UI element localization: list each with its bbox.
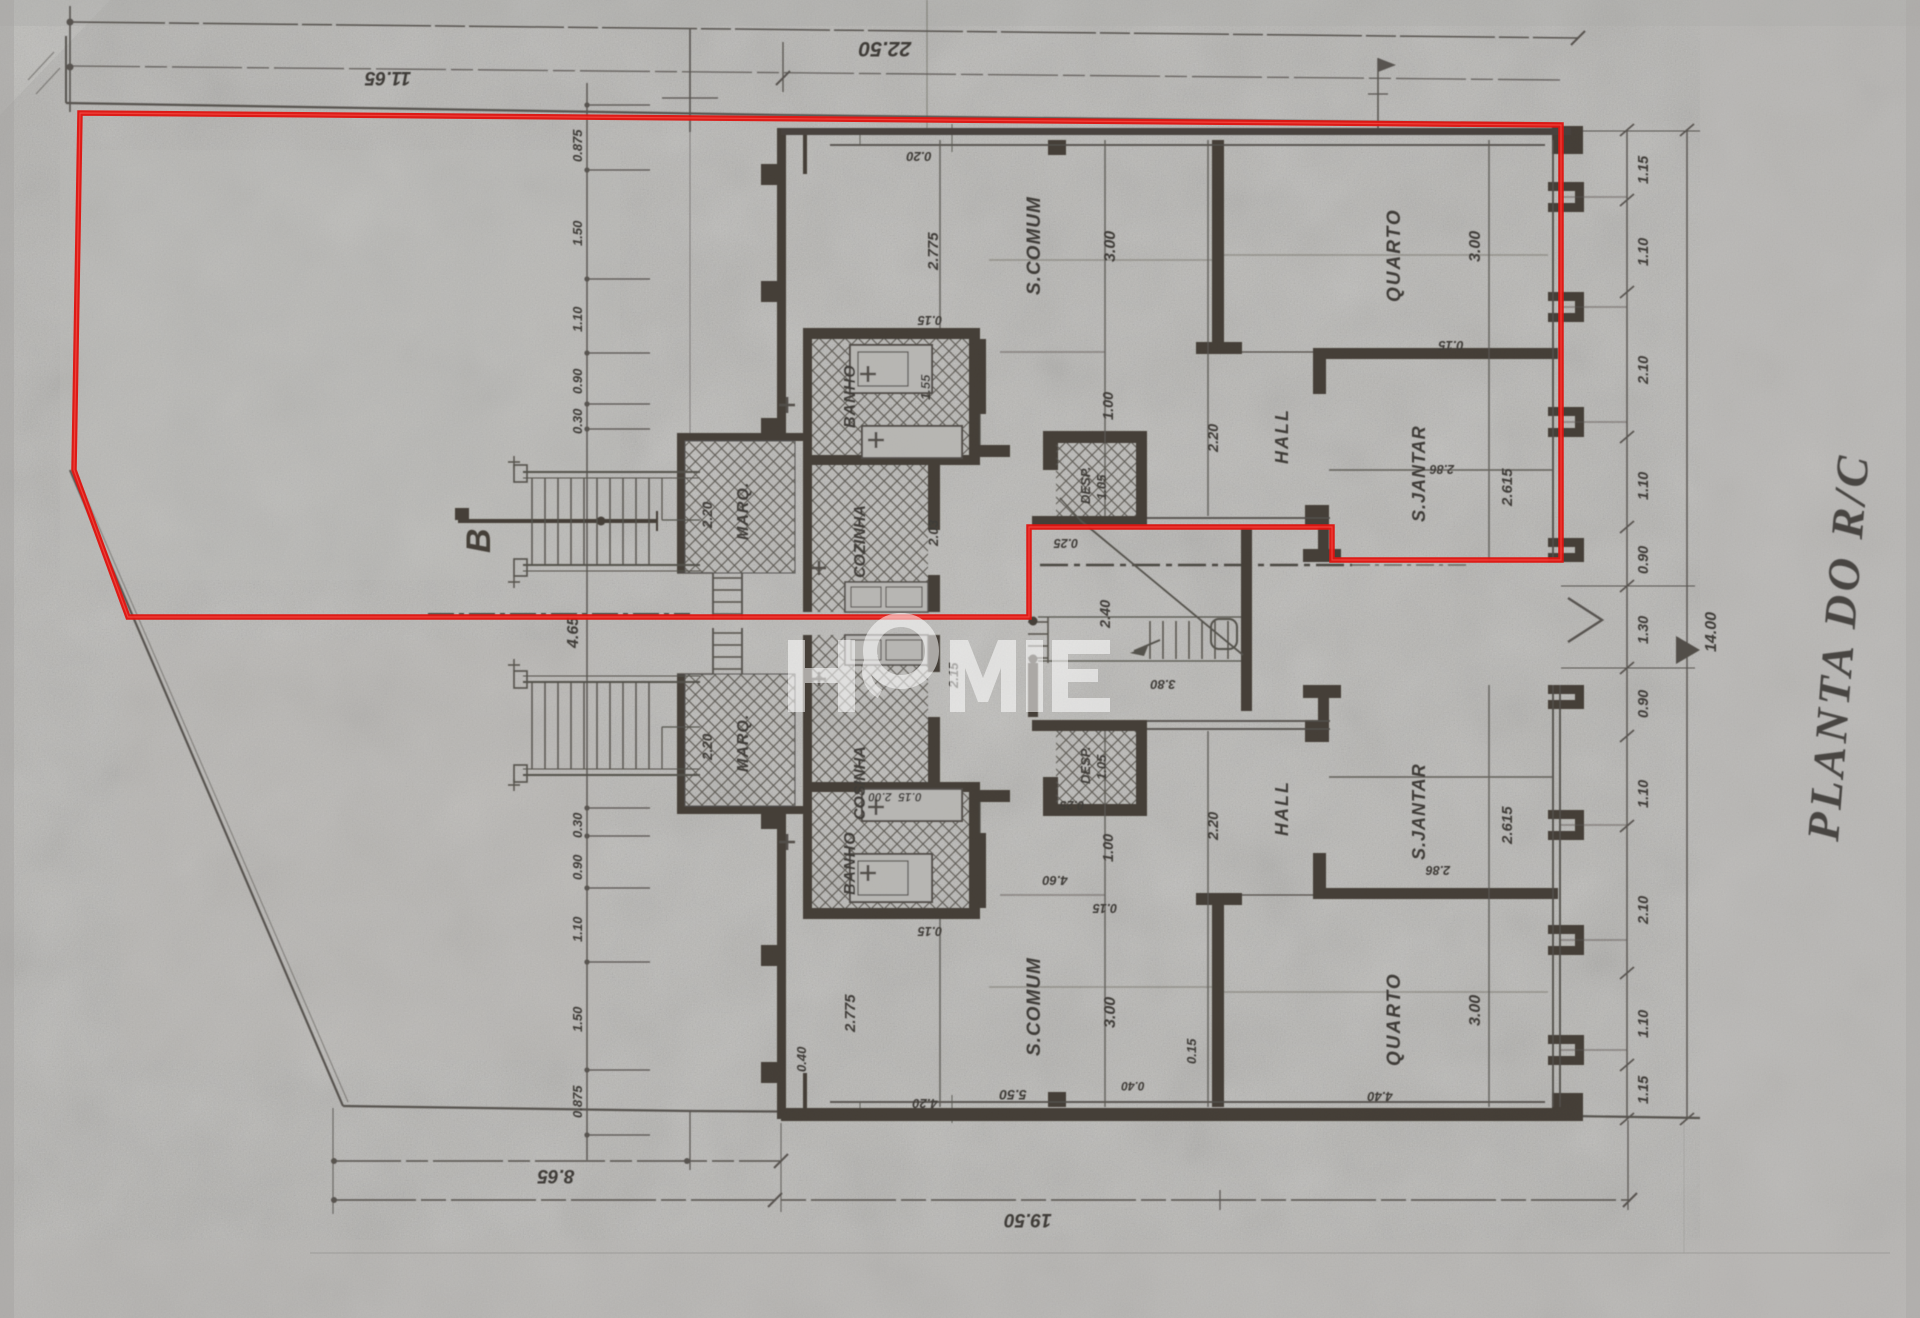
svg-text:HALL: HALL (1272, 780, 1292, 836)
svg-text:1.00: 1.00 (1101, 392, 1117, 420)
svg-text:4.20: 4.20 (912, 1096, 939, 1111)
svg-text:2.615: 2.615 (1499, 806, 1516, 845)
svg-text:22.50: 22.50 (858, 37, 912, 60)
svg-text:4.40: 4.40 (1367, 1089, 1394, 1104)
svg-text:COZINHA: COZINHA (852, 505, 869, 578)
svg-text:3.00: 3.00 (1467, 995, 1484, 1026)
svg-text:2.20: 2.20 (700, 501, 715, 529)
svg-text:0.40: 0.40 (1121, 1079, 1145, 1093)
svg-text:0.15: 0.15 (1184, 1038, 1199, 1064)
svg-text:0.25: 0.25 (1059, 798, 1084, 812)
svg-text:1.50: 1.50 (570, 1006, 585, 1032)
svg-text:0.30: 0.30 (570, 812, 585, 838)
svg-text:0.90: 0.90 (570, 854, 585, 880)
svg-text:1.10: 1.10 (570, 306, 585, 332)
svg-text:0.25: 0.25 (1053, 536, 1078, 550)
svg-text:MARQ.: MARQ. (735, 482, 752, 540)
svg-text:2.775: 2.775 (842, 994, 859, 1033)
svg-text:2.10: 2.10 (1636, 896, 1652, 925)
svg-text:1.30: 1.30 (1636, 616, 1652, 644)
svg-text:BANHO: BANHO (842, 831, 859, 895)
svg-text:QUARTO: QUARTO (1384, 972, 1405, 1066)
svg-text:3.00: 3.00 (1102, 997, 1119, 1028)
svg-text:0.875: 0.875 (570, 129, 585, 162)
svg-text:HALL: HALL (1272, 408, 1292, 464)
svg-text:0.90: 0.90 (1636, 690, 1652, 718)
svg-text:MARQ.: MARQ. (735, 714, 752, 772)
svg-text:11.65: 11.65 (365, 67, 412, 88)
svg-text:1.15: 1.15 (1636, 1075, 1652, 1104)
svg-text:0.15 2.00: 0.15 2.00 (868, 790, 922, 804)
svg-text:3.80: 3.80 (1150, 677, 1176, 692)
svg-text:0.20: 0.20 (906, 149, 932, 164)
svg-text:0.30: 0.30 (570, 408, 585, 434)
svg-text:2.86: 2.86 (1425, 863, 1451, 877)
svg-text:0.15: 0.15 (1092, 901, 1117, 915)
svg-text:4.60: 4.60 (1042, 873, 1069, 888)
svg-text:2.615: 2.615 (1499, 468, 1516, 507)
svg-text:0.15: 0.15 (917, 313, 942, 327)
svg-text:COSINHA: COSINHA (852, 746, 869, 820)
svg-text:2.03: 2.03 (926, 519, 941, 547)
svg-text:2.775: 2.775 (925, 232, 942, 271)
svg-text:1.10: 1.10 (1636, 472, 1652, 500)
svg-text:5.50: 5.50 (999, 1087, 1026, 1103)
svg-text:1.10: 1.10 (1636, 1010, 1652, 1038)
svg-text:19.50: 19.50 (1004, 1209, 1052, 1230)
svg-text:2.40: 2.40 (1098, 600, 1114, 629)
svg-text:0.15: 0.15 (917, 924, 942, 938)
svg-text:2.10: 2.10 (1636, 356, 1652, 385)
svg-text:S.JANTAR: S.JANTAR (1409, 425, 1429, 522)
svg-text:1.00: 1.00 (1101, 834, 1117, 862)
svg-text:1.15: 1.15 (1636, 155, 1652, 184)
svg-text:1.50: 1.50 (570, 220, 585, 246)
svg-text:0.90: 0.90 (570, 368, 585, 394)
svg-text:2.20: 2.20 (700, 733, 715, 761)
svg-text:1.05: 1.05 (1094, 474, 1109, 500)
svg-text:S.COMUM: S.COMUM (1024, 196, 1045, 295)
svg-text:S.JANTAR: S.JANTAR (1409, 763, 1429, 860)
svg-text:B: B (460, 528, 498, 553)
svg-text:1.10: 1.10 (1636, 238, 1652, 266)
svg-text:DESP.: DESP. (1078, 747, 1093, 784)
svg-text:0.875: 0.875 (570, 1085, 585, 1118)
svg-text:BANHO: BANHO (842, 364, 859, 428)
svg-text:2.20: 2.20 (1206, 812, 1222, 841)
svg-text:14.00: 14.00 (1703, 612, 1720, 652)
svg-text:1.10: 1.10 (570, 916, 585, 942)
svg-text:0.15: 0.15 (1438, 338, 1464, 353)
svg-text:2.20: 2.20 (1206, 424, 1222, 453)
svg-text:0.40: 0.40 (794, 1046, 809, 1072)
svg-text:2.86: 2.86 (1429, 462, 1455, 476)
svg-text:1.10: 1.10 (1636, 780, 1652, 808)
svg-text:DESP.: DESP. (1078, 467, 1093, 504)
svg-text:8.65: 8.65 (537, 1165, 574, 1186)
svg-text:1.05: 1.05 (1094, 754, 1109, 780)
svg-text:0.90: 0.90 (1636, 546, 1652, 574)
svg-text:3.00: 3.00 (1467, 231, 1484, 262)
svg-text:1.55: 1.55 (918, 374, 933, 400)
svg-text:QUARTO: QUARTO (1384, 208, 1405, 302)
svg-text:4.65: 4.65 (565, 616, 582, 649)
svg-text:3.00: 3.00 (1102, 231, 1119, 262)
svg-text:S.COMUM: S.COMUM (1024, 957, 1045, 1056)
